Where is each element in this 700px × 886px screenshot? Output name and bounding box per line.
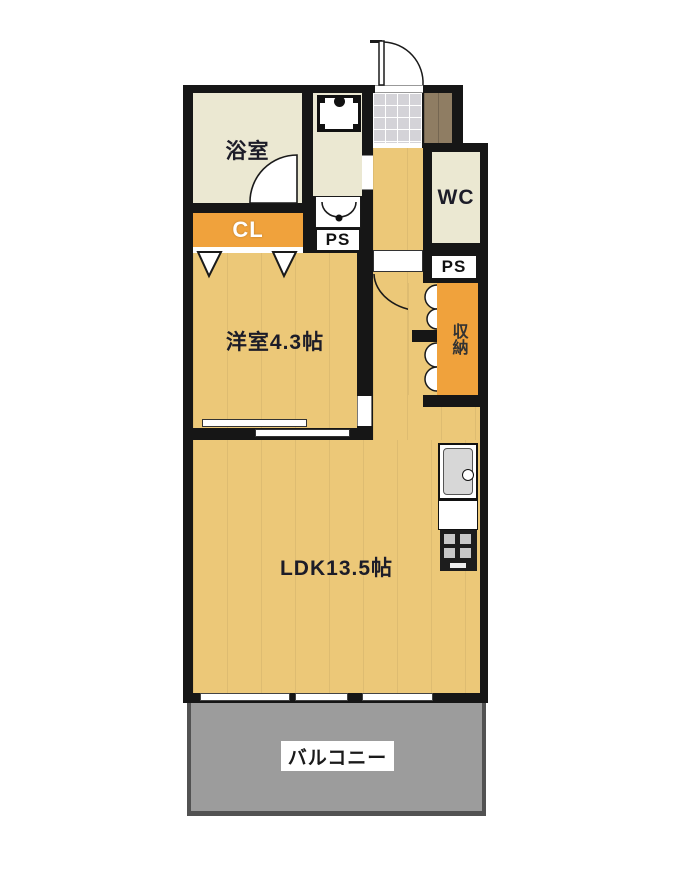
pan-corner [320,124,325,129]
pan-corner [353,98,358,103]
western-room: 洋室4.3帖 [193,253,357,428]
pan-corner [320,98,325,103]
faucet-icon [462,469,474,481]
pipe-space-washroom-label: PS [326,230,351,250]
window-sliding [200,693,290,701]
closet-label: CL [232,217,263,243]
sliding-door-panel-b [255,429,350,437]
floor-plan: 浴室 PS WC [0,0,700,886]
storage-middle-stub [412,330,437,342]
washroom-door-opening [362,155,373,190]
wc-label: WC [438,186,475,210]
ldk-floor-upper-right [373,407,480,440]
stove-icon [440,530,477,571]
kitchen-sink [438,443,478,500]
pipe-space-hall-label: PS [442,257,467,277]
pan-corner [353,124,358,129]
pipe-space-washroom: PS [317,230,359,250]
ldk-label: LDK13.5帖 [280,552,393,582]
washing-machine-pan-icon [317,95,361,132]
storage-label: 収納 [446,323,470,355]
pipe-space-hall: PS [432,256,476,278]
kitchen-counter [438,500,478,530]
grill-slot [450,563,466,568]
ldk-door-leaf [373,250,423,272]
closet-cl: CL [193,213,303,247]
shoe-cabinet [424,93,452,143]
sliding-door-panel-a [202,419,307,427]
genkan-tile-floor [373,93,422,143]
ldk-room: LDK13.5帖 [193,440,480,693]
entry-door-icon [366,36,426,94]
balcony-area: バルコニー [187,703,486,816]
bathroom-door-icon [249,152,299,204]
storage-closet: 収納 [437,283,478,395]
window-sliding [295,693,348,701]
wc-room: WC [432,152,480,243]
burner [444,548,455,558]
sliding-door-pocket [357,396,372,426]
window-sliding [362,693,433,701]
western-room-label: 洋室4.3帖 [226,326,324,356]
hall-floor [373,148,423,250]
burner [444,534,455,544]
burner [460,548,471,558]
balcony-label: バルコニー [288,743,388,770]
pan-drain [334,96,345,107]
balcony-label-box: バルコニー [281,741,394,771]
closet-door-markers [193,251,303,279]
washbasin-icon [315,196,361,228]
burner [460,534,471,544]
